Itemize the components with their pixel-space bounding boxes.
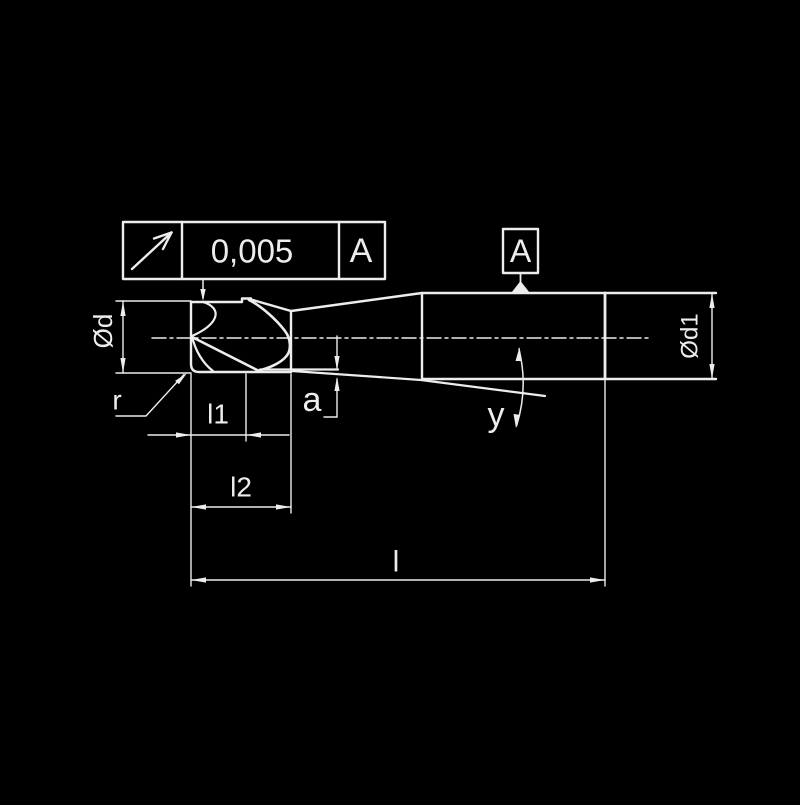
- tolerance-value-label: 0,005: [211, 233, 294, 270]
- dim-l2-arrow-right: [276, 504, 291, 509]
- flute-s-curve: [249, 300, 290, 371]
- dim-a: [324, 336, 340, 417]
- dim-l-arrow-right: [590, 577, 605, 582]
- head-top-edge: [191, 299, 251, 303]
- taper-and-shank-top-edge: [291, 293, 716, 311]
- runout-symbol-icon: [132, 233, 172, 270]
- dim-shank-diameter: [709, 293, 714, 379]
- dim-angle-y: [514, 347, 524, 428]
- flute-runout-line: [292, 371, 545, 396]
- dim-r-label: r: [112, 385, 121, 416]
- dim-l-arrow-left: [191, 577, 206, 582]
- dim-l1-label: l1: [207, 399, 229, 430]
- dim-a-arrow-down: [334, 356, 339, 370]
- dim-a-label: a: [303, 381, 322, 419]
- end-mill-drawing: 0,005 A A: [0, 0, 800, 800]
- fcf-leader: [200, 279, 205, 301]
- fcf-leader-arrowhead: [200, 289, 205, 301]
- dim-d1-arrow-down: [709, 364, 714, 379]
- dim-y-label: y: [488, 396, 505, 434]
- flute-curves: [192, 300, 290, 371]
- dim-d-arrow-down: [120, 358, 125, 373]
- dim-r-leader: [116, 375, 184, 417]
- dim-l1-arrow-left: [176, 432, 191, 437]
- dim-a-arrow-up: [334, 377, 339, 391]
- dim-head-diameter: [116, 301, 191, 373]
- dim-r: [116, 373, 187, 416]
- dim-l1: [148, 432, 289, 437]
- dim-l2: [191, 504, 291, 509]
- dim-d1-arrow-up: [709, 293, 714, 308]
- flute-bowl-curve: [192, 302, 216, 336]
- tool-outline: [191, 293, 716, 396]
- fcf-datum-letter: A: [350, 232, 373, 270]
- flute-leg-edge: [192, 337, 259, 371]
- dim-d-label: Ød: [88, 314, 118, 349]
- dim-d1-label: Ød1: [677, 313, 704, 358]
- dim-l1-arrow-right: [246, 432, 261, 437]
- datum-flag-letter: A: [510, 233, 532, 269]
- datum-triangle-icon: [512, 281, 530, 293]
- technical-drawing-canvas: 0,005 A A: [0, 0, 800, 800]
- dim-l-label: l: [393, 546, 400, 579]
- dim-d-arrow-up: [120, 301, 125, 316]
- dim-l2-arrow-left: [191, 504, 206, 509]
- dim-l2-label: l2: [230, 472, 252, 503]
